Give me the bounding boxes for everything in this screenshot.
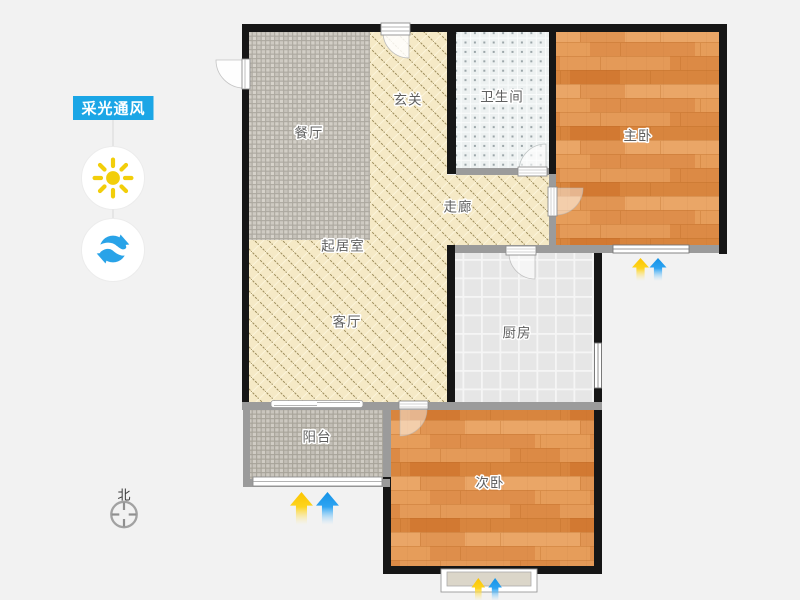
svg-text:阳台: 阳台 — [303, 430, 332, 445]
svg-text:客厅: 客厅 — [333, 314, 362, 330]
svg-text:厨房: 厨房 — [503, 326, 532, 341]
svg-text:次卧: 次卧 — [476, 476, 505, 491]
svg-text:主卧: 主卧 — [624, 129, 653, 144]
svg-text:走廊: 走廊 — [444, 199, 473, 215]
svg-text:起居室: 起居室 — [321, 238, 365, 254]
svg-text:餐厅: 餐厅 — [295, 126, 324, 141]
svg-text:玄关: 玄关 — [394, 92, 423, 108]
svg-text:北: 北 — [117, 488, 130, 503]
svg-text:卫生间: 卫生间 — [480, 90, 524, 105]
svg-text:采光通风: 采光通风 — [80, 100, 145, 118]
